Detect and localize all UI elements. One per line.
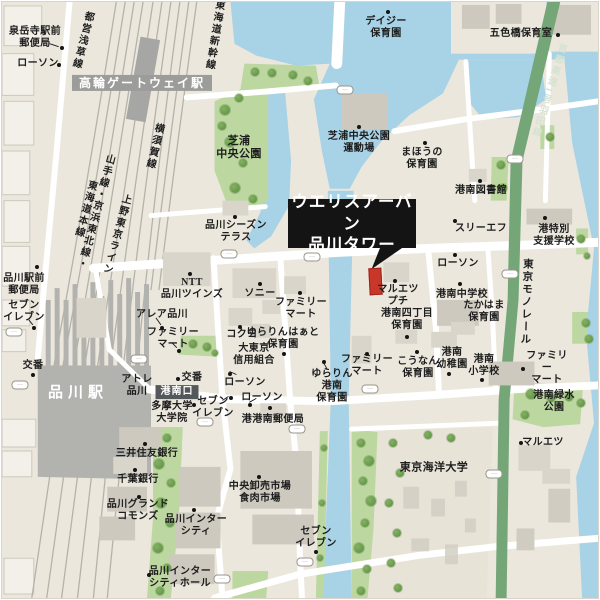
tree-icon [366,496,376,506]
poi-dot [405,335,409,339]
map-label-seven-left: セブン イレブン [3,300,45,324]
tree-icon [357,587,365,595]
map-label-seven-konan-exit: セブン イレブン [192,396,234,420]
map-label-shinagawa-intercity: 品川インター シティ [165,514,227,538]
tree-icon [577,399,585,407]
tree-icon [154,459,164,469]
map-label-minato-shien-gakko: 港特別 支援学校 [533,224,575,248]
poi-dot [357,125,361,129]
map-label-koban-center: 交番 [182,372,203,384]
tree-icon [363,565,371,573]
poi-dot [478,179,482,183]
poi-dot [556,33,560,37]
map-label-chiba-bank: 千葉銀行 [117,474,159,486]
signal-badge: ··· [486,470,503,479]
map-label-takahama-hoikuen: たかはま 保育園 [463,300,504,324]
poi-dot [31,373,35,377]
poi-dot [365,352,369,356]
map-label-goshikibashi-hoikushitsu: 五色橋保育室 [490,28,552,40]
tree-icon [218,122,226,130]
map-label-famima-alea: ファミリー マート [147,327,199,351]
map-label-famima-east: ファミリー マート [522,350,573,385]
signal-badge: ··· [6,328,23,337]
tree-icon [230,183,240,193]
tree-icon [582,319,590,327]
map-label-tokyo-kaiyo-univ: 東京海洋大学 [400,462,468,475]
poi-dot [137,495,141,499]
tree-icon [584,253,590,259]
tree-icon [387,559,395,567]
map-label-konan-jhs: 港南中学校 [436,289,488,301]
tree-icon [447,434,455,442]
map-label-lawson-post: ローソン [241,392,283,404]
tree-icon [268,69,276,77]
map-label-sony: ソニー [244,288,275,300]
poi-dot [257,475,261,479]
tree-icon [249,195,257,203]
map-label-ntt-shinagawa-twins: NTT 品川ツインズ [161,277,223,301]
poi-dot [322,360,326,364]
poi-dot [386,10,390,14]
map-label-konan-library: 港南図書館 [455,185,507,197]
map-label-sengakuji-post: 泉岳寺駅前 郵便局 [9,26,61,50]
poi-dot [57,63,61,67]
poi-dot [393,279,397,283]
signal-badge: ··· [221,250,238,259]
signal-badge: ··· [12,381,29,390]
poi-dot [177,349,181,353]
poi-dot [176,377,180,381]
map-label-lawson-mid: ローソン [224,377,266,389]
tree-icon [289,71,297,79]
poi-dot [423,141,427,145]
poi-dot [458,282,462,286]
shinagawa-area-map: ウエリスアーバン 品川タワー 泉岳寺駅前 郵便局ローソン都営浅草線高輪ゲートウェ… [2,2,598,598]
map-label-koban-left: 交番 [23,360,44,372]
poi-dot [453,219,457,223]
map-label-lawson-nw: ローソン [17,58,59,70]
signal-badge: ··· [214,575,231,584]
poi-dot [268,406,272,410]
map-label-shinagawa-season-terrace: 品川シーズン テラス [205,220,267,244]
map-label-maruetsu: マルエツ [522,437,564,449]
map-label-smbc-bank: 三井住友銀行 [116,448,178,460]
map-label-lawson-center: ローソン [437,258,479,270]
poi-dot [192,508,196,512]
poi-dot [188,272,192,276]
map-label-alea-shinagawa: アレア品川 [136,309,188,321]
poi-dot [282,352,286,356]
signal-badge: ··· [131,355,148,364]
tree-icon [394,584,402,592]
map-label-shinagawa-sta: 品川駅 [48,385,108,403]
poi-dot [228,372,232,376]
poi-dot [143,442,147,446]
map-screenshot: ウエリスアーバン 品川タワー 泉岳寺駅前 郵便局ローソン都営浅草線高輪ゲートウェ… [0,0,600,600]
poi-dot [133,468,137,472]
poi-dot [415,350,419,354]
map-label-konan-ryokusui-park: 港南緑水 公園 [533,390,575,414]
tree-icon [521,411,529,419]
map-label-shinagawa-ekimae-post: 品川駅前 郵便局 [3,273,45,297]
map-label-konan-post-office: 港港南郵便局 [242,414,304,426]
map-label-daisy-hoikuen: デイジー 保育園 [365,16,407,40]
map-label-takanawa-gateway-sta: 高輪ゲートウェイ駅 [72,75,212,91]
tree-icon [385,499,393,507]
tree-icon [389,439,397,447]
poi-dot [60,46,64,50]
poi-dot [480,378,484,382]
poi-dot [160,326,164,330]
tree-icon [577,235,585,243]
property-name-line1: ウエリスアーバン [288,191,416,234]
poi-dot [521,367,525,371]
property-callout: ウエリスアーバン 品川タワー [288,199,416,248]
signal-badge: ··· [502,270,519,279]
tree-icon [364,456,374,466]
poi-dot [248,403,252,407]
signal-badge: ··· [337,86,354,95]
poi-dot [258,282,262,286]
map-label-konan-4chome-hoikuen: 港南四丁目 保育園 [381,308,433,332]
tree-icon [497,161,505,169]
map-label-kounan-hoikuen: こうなん 保育園 [397,356,439,380]
signal-badge: ··· [362,385,379,394]
map-label-seven-market: セブン イレブン [295,526,337,550]
tree-icon [235,94,243,102]
signal-badge: ··· [507,155,524,164]
poi-dot [543,216,547,220]
poi-dot [453,253,457,257]
map-label-konan-elementary: 港南 小学校 [468,354,499,378]
map-label-konan-kindergarten: 港南 幼稚園 [436,347,467,371]
tree-icon [167,479,175,487]
map-label-shinagawa-intercity-hall: 品川インター シティホール [149,566,211,590]
tree-icon [357,439,365,447]
tree-icon [361,519,369,527]
poi-dot [233,215,237,219]
tree-icon [220,105,230,115]
tree-icon [153,543,163,553]
map-label-atre-shinagawa: アトレ 品川 [121,374,152,398]
tree-icon [163,434,171,442]
property-name-line2: 品川タワー [288,234,416,255]
poi-dot [314,550,318,554]
poi-dot [32,326,36,330]
tree-icon [319,500,325,506]
poi-dot [192,403,196,407]
map-label-shibaura-chuo-park: 芝浦 中央公園 [216,135,262,161]
tree-icon [585,335,593,343]
map-label-shibaura-undojo: 芝浦中央公園 運動場 [328,131,390,155]
map-label-three-f: スリーエフ [455,223,507,235]
poi-dot [519,441,523,445]
tree-icon [203,343,211,351]
map-label-daitokyo-shinyo-kumiai: 大東京 信用組合 [233,343,275,367]
poi-dot [147,573,151,577]
poi-dot [298,291,302,295]
tree-icon [321,445,327,451]
tree-icon [546,133,554,141]
tree-icon [393,529,401,537]
map-label-tama-univ: 多摩大学 大学院 [151,401,193,425]
tree-icon [251,68,259,76]
map-label-mahou-hoikuen: まほうの 保育園 [401,147,443,171]
tree-icon [354,543,364,553]
tree-icon [304,77,312,85]
map-label-famima-sony: ファミリー マート [275,297,327,321]
signal-badge: ··· [297,558,314,567]
poi-dot [35,265,39,269]
poi-dot [447,372,451,376]
tree-icon [424,431,432,439]
poi-dot [238,325,242,329]
poi-dot [229,396,233,400]
map-label-chuo-wholesale-market: 中央卸売市場 食肉市場 [229,481,291,505]
tree-icon [359,477,367,485]
map-label-maruetsu-petit: マルエツ プチ [377,284,419,308]
map-label-yurarin-konan-hoikuen: ゆらりん 港南 保育園 [311,368,353,403]
tree-icon [317,555,323,561]
tree-icon [212,350,218,356]
map-label-shinagawa-grand-commons: 品川グランド コモンズ [107,499,169,523]
